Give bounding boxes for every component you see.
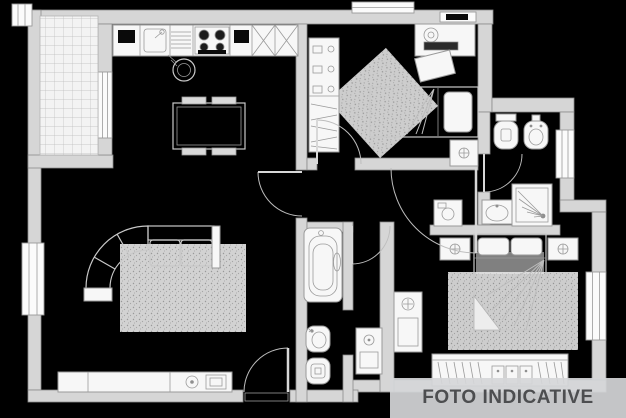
desk-printer (424, 42, 458, 50)
desk (415, 24, 475, 82)
toilet-bottom (306, 358, 330, 384)
cabinet-front (118, 30, 135, 43)
bathtub (304, 228, 342, 302)
balcony-door (98, 72, 112, 138)
bidet-bottom (306, 326, 330, 352)
pillow (478, 238, 509, 255)
top-window (352, 2, 414, 13)
master-bedroom-window (586, 272, 606, 340)
bedroom-wall-vent (440, 12, 476, 22)
nightstand-right (548, 238, 578, 260)
living-rug (120, 244, 246, 332)
master-rug (448, 272, 578, 350)
floor-plan-image: FOTO INDICATIVE (0, 0, 626, 418)
bathroom-window (556, 130, 574, 178)
chair (182, 148, 206, 155)
pillow (444, 92, 472, 132)
balcony-tiled-floor (40, 16, 98, 155)
tv-sideboard (58, 372, 232, 392)
bathroom-washbasin (482, 200, 512, 224)
balcony (40, 16, 98, 155)
watermark-banner: FOTO INDICATIVE (390, 378, 626, 418)
floor-plan-svg (0, 0, 626, 418)
pillow (511, 238, 542, 255)
laundry-washbasin (356, 328, 382, 374)
watermark-label: FOTO INDICATIVE (422, 387, 593, 409)
kitchen-counter (113, 25, 298, 56)
chair (182, 97, 206, 104)
pot (168, 55, 195, 81)
basin-cabinet (394, 292, 422, 352)
shelving-unit (309, 38, 339, 152)
chair (212, 97, 236, 104)
corner-window (12, 4, 32, 26)
bidet (524, 115, 548, 149)
dining-table (173, 97, 245, 155)
washing-machine (434, 200, 462, 226)
entrance-door (244, 348, 288, 392)
entrance-threshold (245, 393, 288, 401)
sofa-armrest (84, 288, 112, 301)
sofa-armrest (212, 226, 220, 268)
living-window (22, 243, 44, 315)
nightstand-left (440, 238, 470, 260)
living-hall-door (258, 172, 302, 216)
shower (512, 184, 552, 226)
toilet (494, 114, 518, 149)
cabinet-front (234, 30, 249, 43)
chair (212, 148, 236, 155)
bedroom-nightstand (450, 140, 478, 166)
